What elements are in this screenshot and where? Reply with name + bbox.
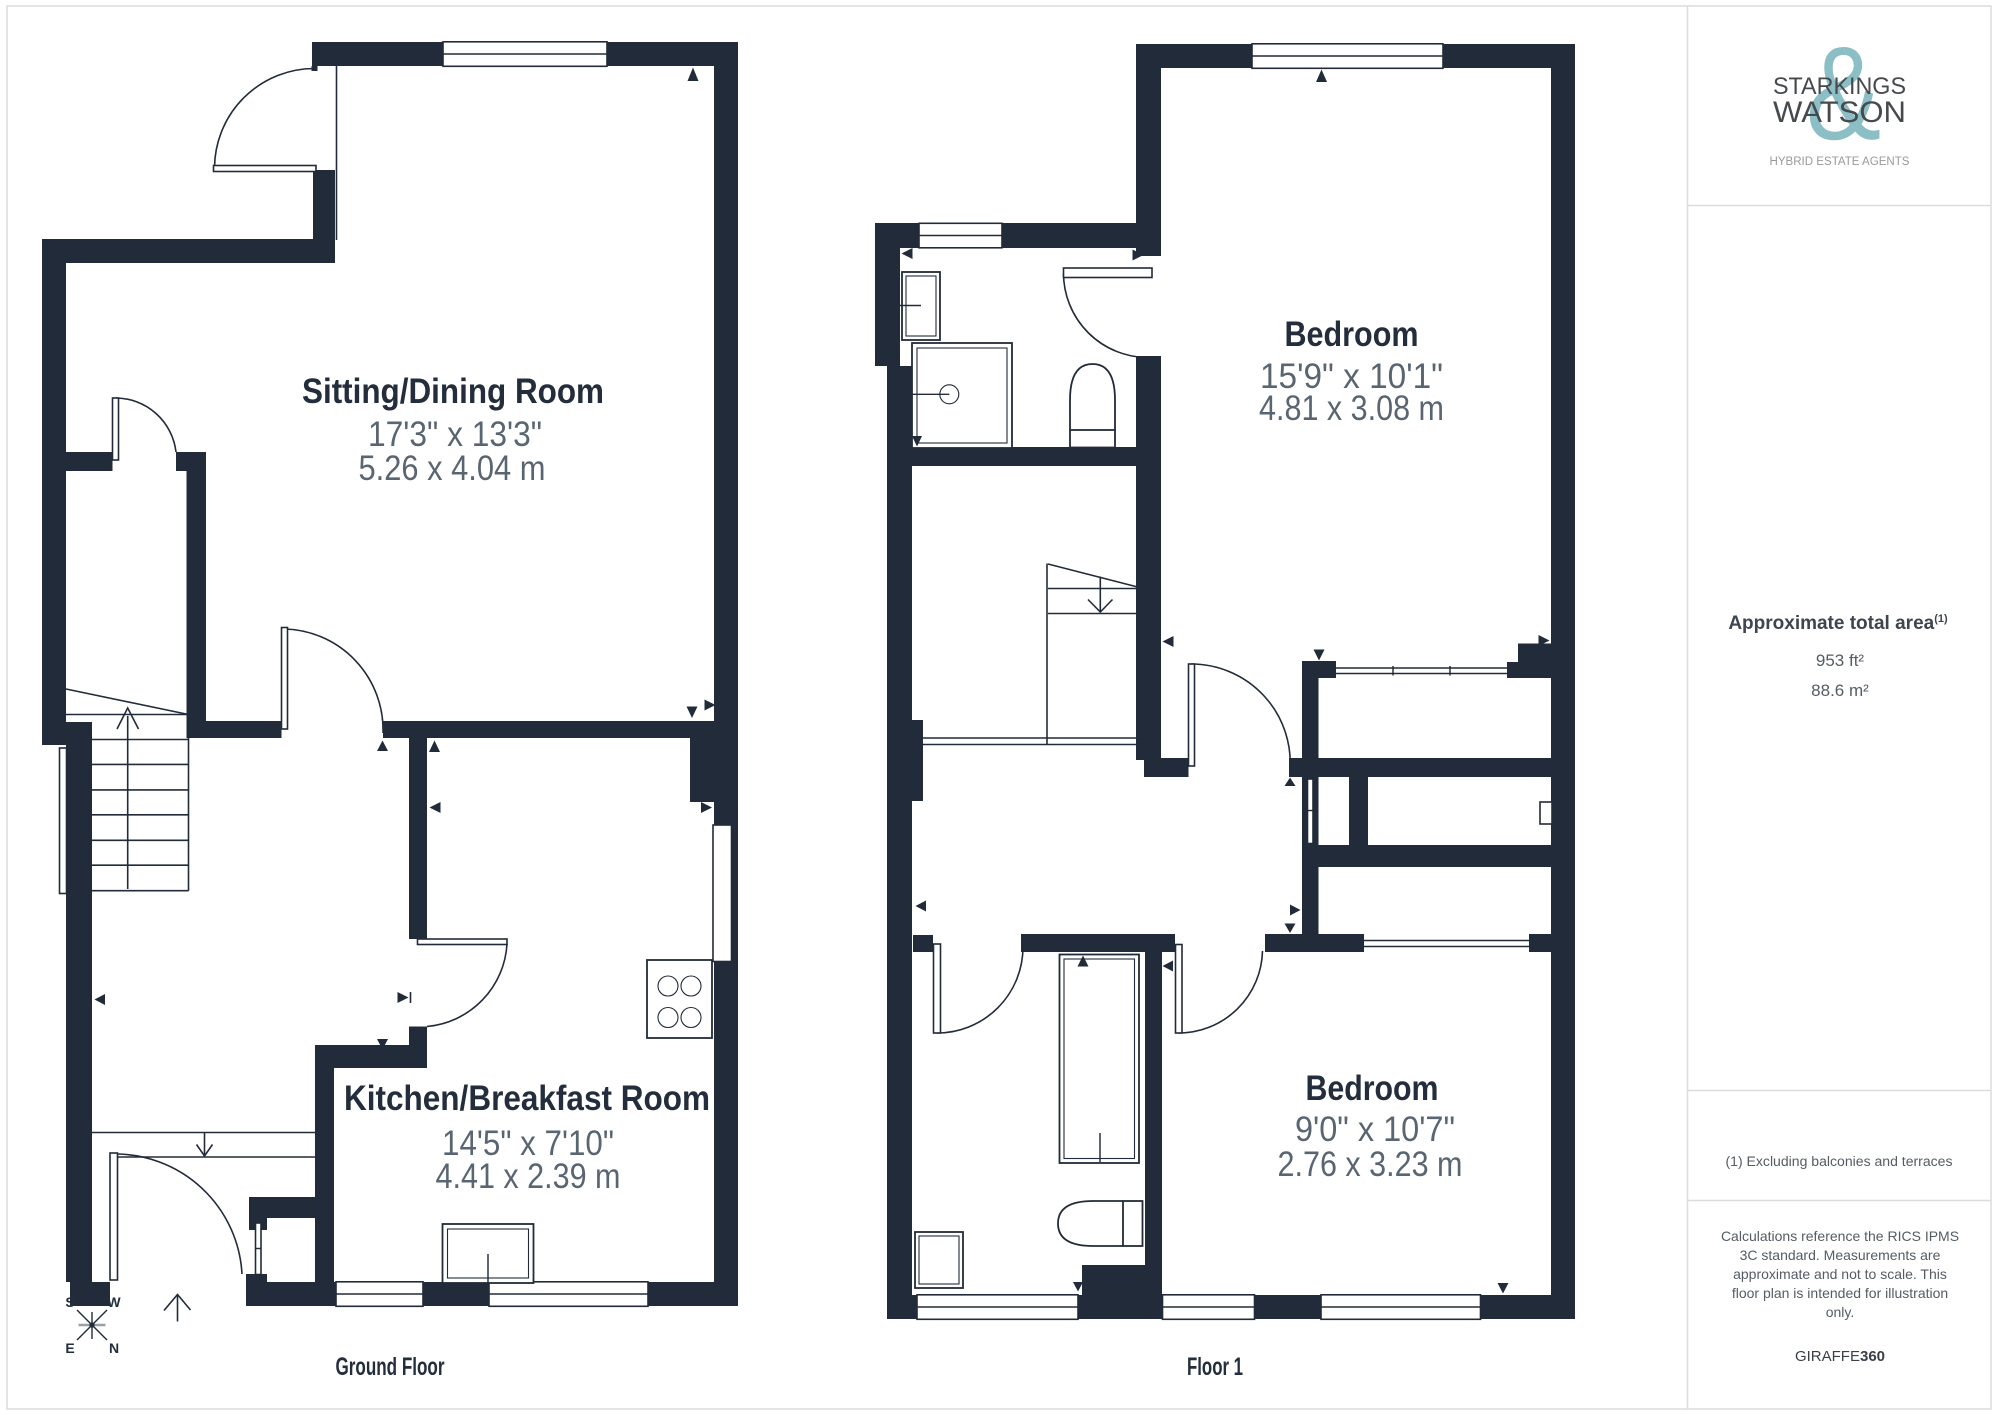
svg-text:Floor 1: Floor 1 [1187, 1353, 1243, 1381]
svg-text:Approximate total area(1): Approximate total area(1) [1728, 613, 1948, 634]
svg-text:Kitchen/Breakfast Room: Kitchen/Breakfast Room [344, 1079, 710, 1118]
svg-text:Bedroom: Bedroom [1306, 1069, 1439, 1108]
svg-text:N: N [109, 1340, 119, 1356]
svg-text:9'0" x 10'7": 9'0" x 10'7" [1295, 1110, 1455, 1149]
svg-text:5.26 x 4.04 m: 5.26 x 4.04 m [359, 449, 546, 488]
svg-text:floor plan is intended for ill: floor plan is intended for illustration [1732, 1285, 1948, 1301]
svg-text:approximate and not to scale.: approximate and not to scale. This [1733, 1266, 1947, 1282]
svg-text:GIRAFFE360: GIRAFFE360 [1795, 1348, 1885, 1365]
svg-text:2.76 x 3.23 m: 2.76 x 3.23 m [1278, 1145, 1463, 1184]
svg-text:3C standard. Measurements are: 3C standard. Measurements are [1740, 1247, 1941, 1263]
svg-text:only.: only. [1826, 1304, 1855, 1320]
svg-text:953 ft²: 953 ft² [1816, 651, 1865, 670]
svg-text:(1) Excluding balconies and te: (1) Excluding balconies and terraces [1726, 1154, 1953, 1169]
svg-text:Bedroom: Bedroom [1285, 315, 1419, 354]
svg-text:Calculations reference the RIC: Calculations reference the RICS IPMS [1721, 1228, 1959, 1244]
svg-text:Sitting/Dining Room: Sitting/Dining Room [302, 372, 604, 411]
svg-text:4.41 x 2.39 m: 4.41 x 2.39 m [436, 1157, 621, 1196]
svg-text:S: S [65, 1294, 74, 1310]
svg-text:W: W [107, 1294, 121, 1310]
svg-text:4.81 x 3.08 m: 4.81 x 3.08 m [1259, 389, 1444, 428]
svg-text:Ground Floor: Ground Floor [336, 1353, 445, 1381]
svg-text:WATSON: WATSON [1773, 96, 1906, 129]
svg-text:88.6 m²: 88.6 m² [1811, 681, 1869, 700]
svg-text:HYBRID ESTATE AGENTS: HYBRID ESTATE AGENTS [1770, 156, 1910, 168]
svg-text:E: E [65, 1340, 74, 1356]
